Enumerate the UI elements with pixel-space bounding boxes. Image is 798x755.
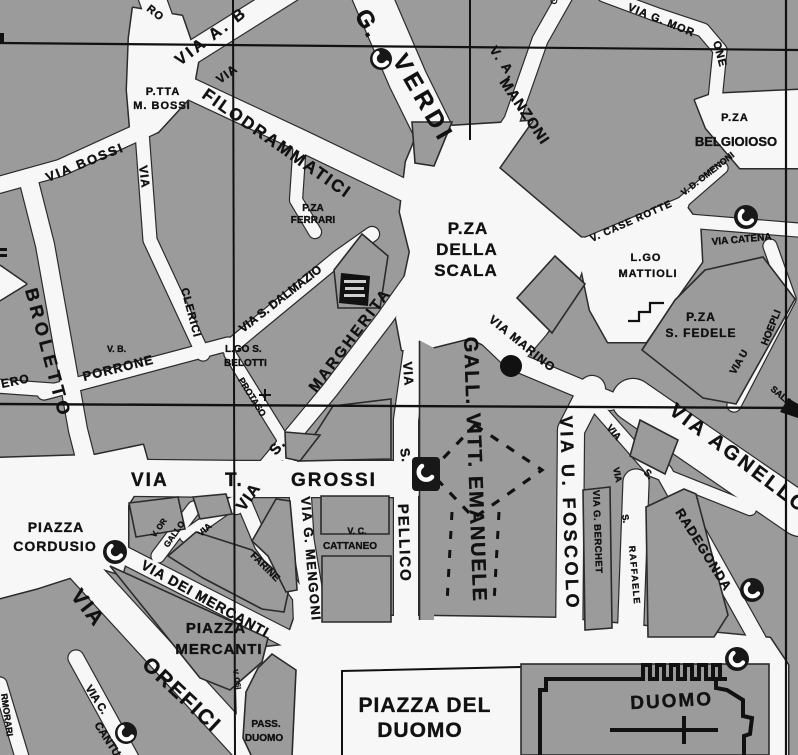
svg-text:CORDUSIO: CORDUSIO bbox=[13, 538, 96, 554]
svg-text:PIAZZA: PIAZZA bbox=[28, 519, 85, 535]
svg-text:M. BOSSI: M. BOSSI bbox=[133, 100, 191, 112]
svg-text:VIA: VIA bbox=[400, 361, 417, 387]
svg-text:FERRARI: FERRARI bbox=[291, 215, 336, 226]
svg-text:P.ZA: P.ZA bbox=[721, 112, 749, 124]
svg-text:S.: S. bbox=[620, 514, 631, 524]
svg-text:P.TTA: P.TTA bbox=[146, 86, 181, 98]
svg-text:L.GO S.: L.GO S. bbox=[225, 344, 262, 355]
svg-text:PASS.: PASS. bbox=[251, 719, 280, 730]
svg-text:V. C.: V. C. bbox=[347, 526, 366, 536]
svg-text:PIAZZA DEL: PIAZZA DEL bbox=[359, 694, 492, 717]
svg-text:DUOMO: DUOMO bbox=[377, 719, 463, 742]
svg-text:BELOTTI: BELOTTI bbox=[224, 358, 267, 369]
svg-text:CATTANEO: CATTANEO bbox=[323, 541, 377, 552]
svg-text:T.: T. bbox=[225, 470, 244, 491]
svg-text:P.ZA: P.ZA bbox=[448, 219, 489, 238]
svg-text:PIAZZA: PIAZZA bbox=[186, 620, 246, 637]
svg-text:P.ZA: P.ZA bbox=[686, 310, 716, 324]
svg-text:DUOMO: DUOMO bbox=[245, 733, 284, 744]
svg-text:PELLICO: PELLICO bbox=[394, 504, 414, 584]
svg-text:P.ZA: P.ZA bbox=[302, 203, 324, 214]
svg-text:BELGIOIOSO: BELGIOIOSO bbox=[695, 134, 777, 149]
svg-text:DELLA: DELLA bbox=[436, 240, 498, 259]
svg-text:SCALA: SCALA bbox=[434, 261, 498, 280]
svg-text:MERCANTI: MERCANTI bbox=[175, 641, 262, 658]
svg-text:VIA: VIA bbox=[131, 470, 169, 491]
svg-text:S. FEDELE: S. FEDELE bbox=[665, 326, 736, 340]
svg-text:L.GO: L.GO bbox=[631, 252, 662, 264]
svg-text:V. B.: V. B. bbox=[107, 344, 126, 354]
svg-text:S.: S. bbox=[397, 447, 414, 464]
svg-text:GROSSI: GROSSI bbox=[291, 470, 377, 491]
svg-text:VIA: VIA bbox=[136, 165, 153, 190]
svg-text:DUOMO: DUOMO bbox=[630, 689, 714, 714]
svg-text:MATTIOLI: MATTIOLI bbox=[618, 268, 677, 280]
